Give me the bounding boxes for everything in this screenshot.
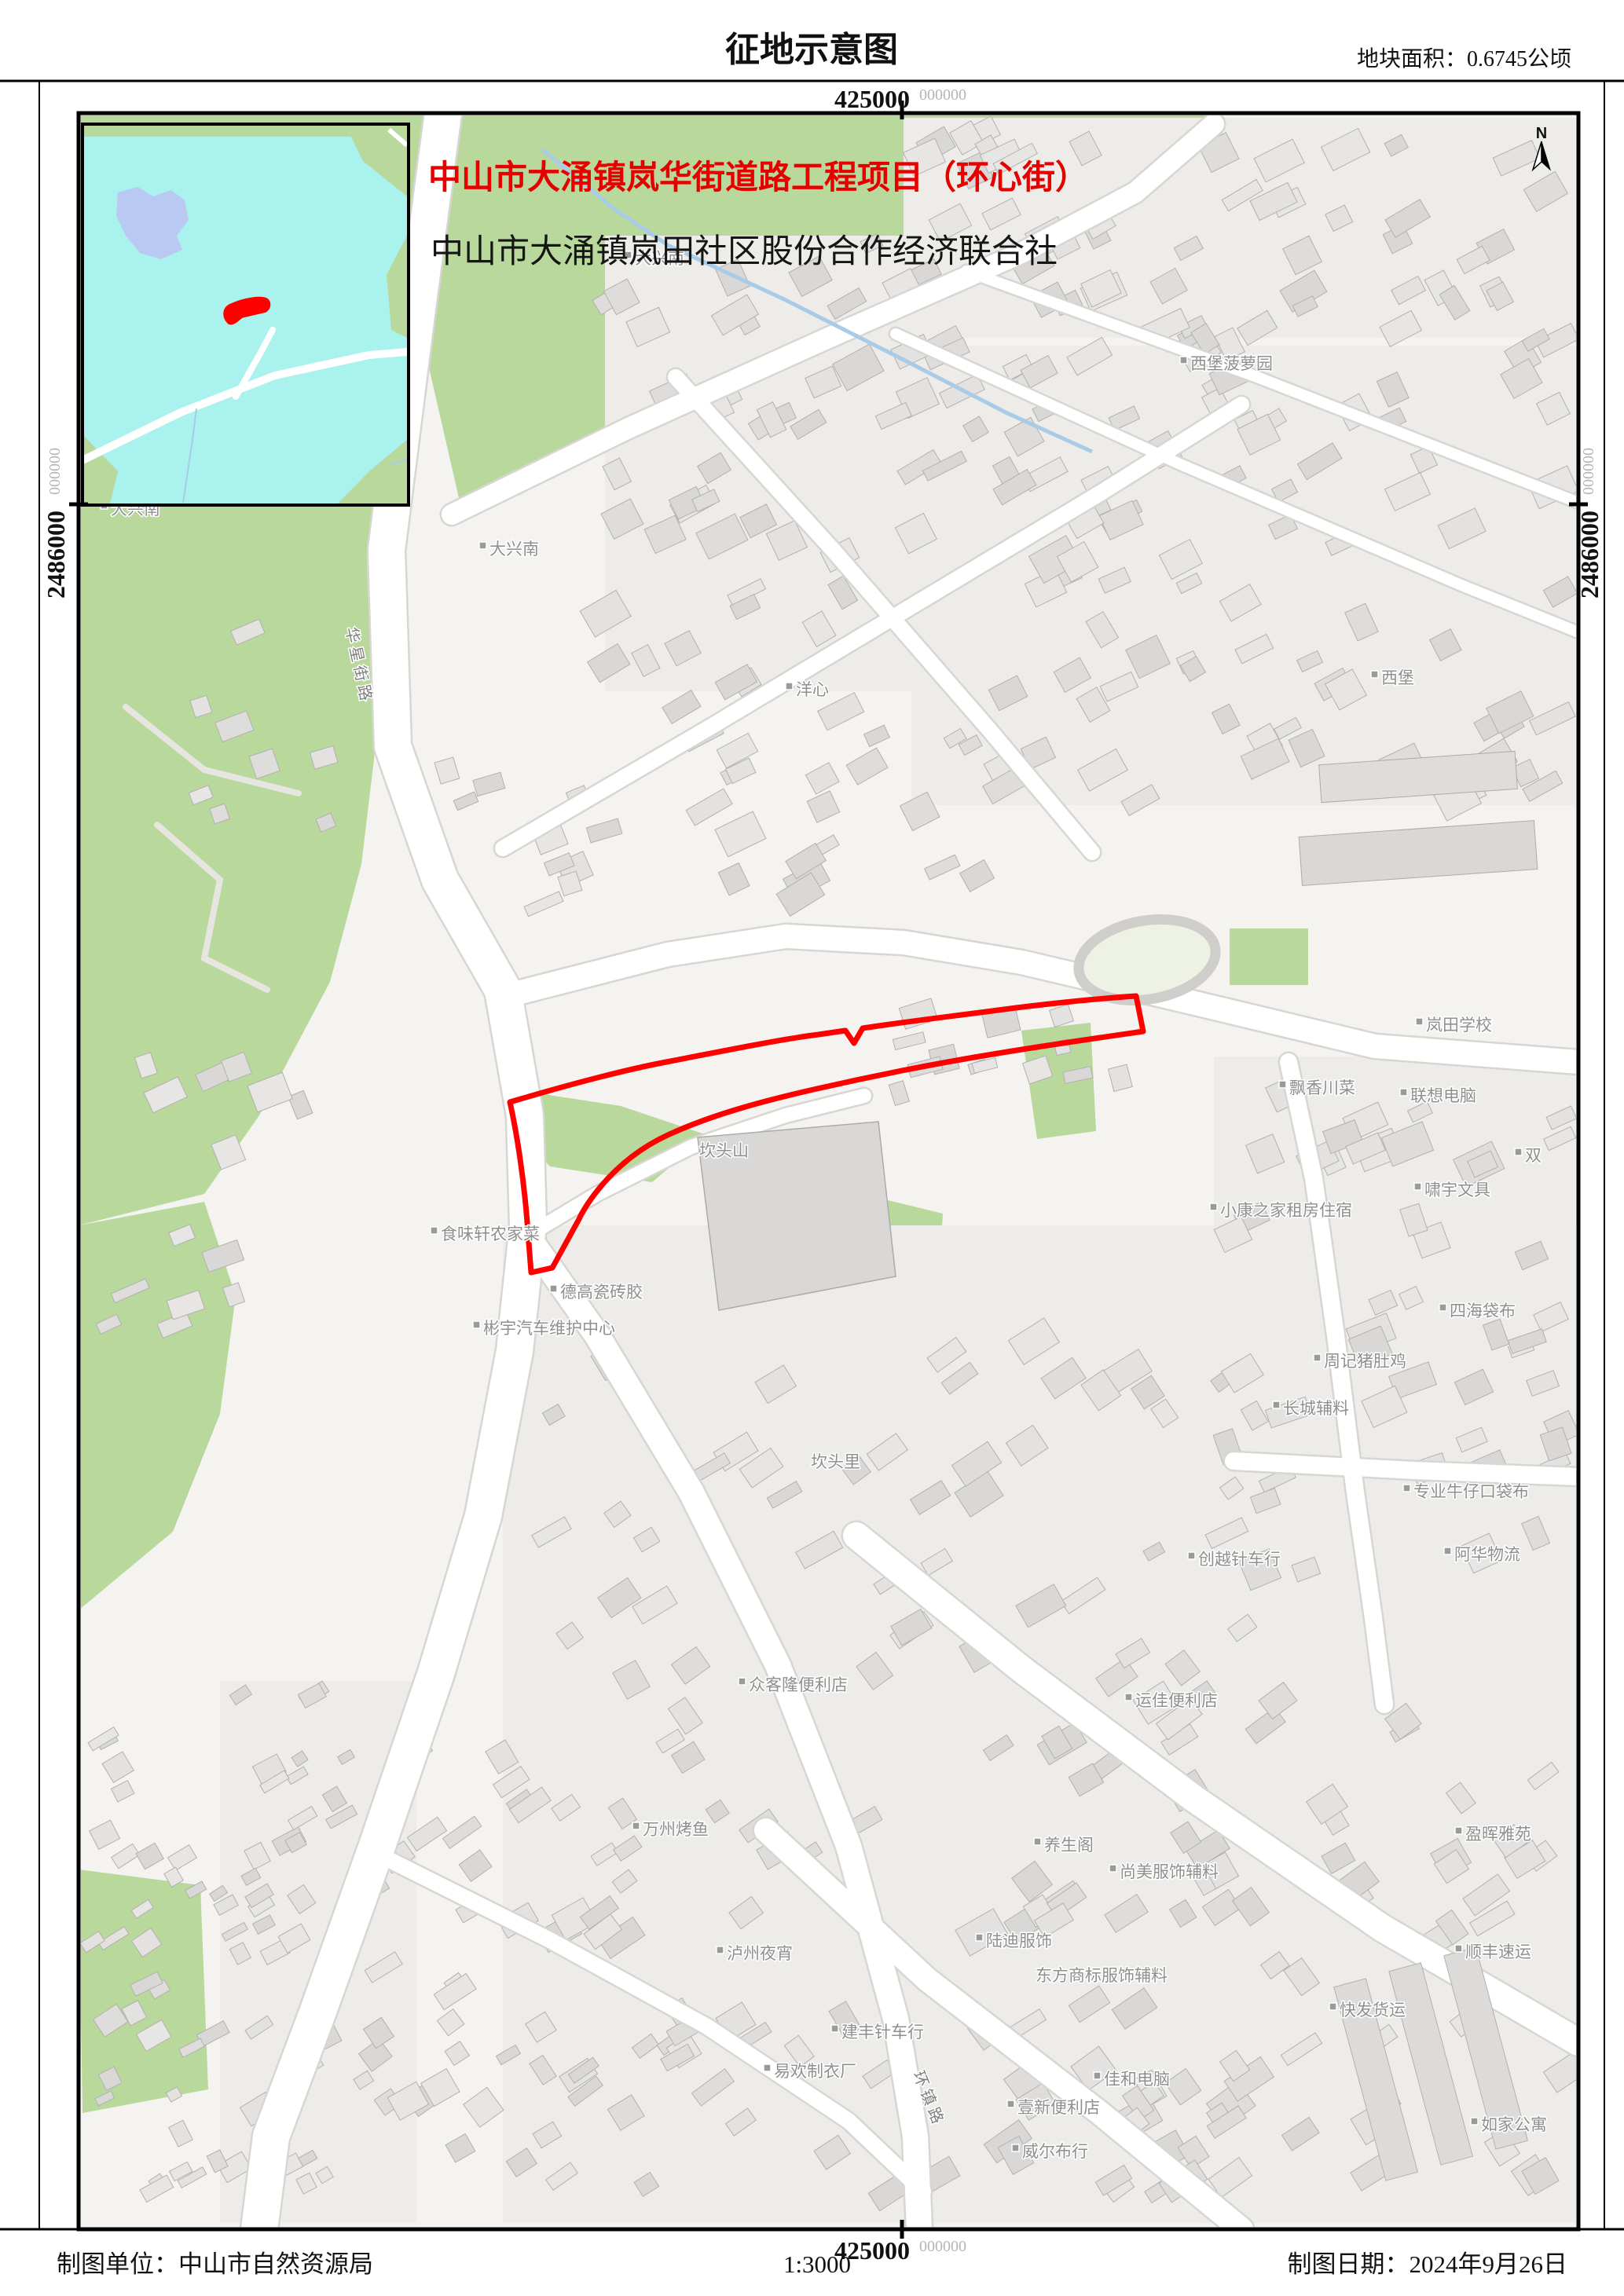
svg-text:佳和电脑: 佳和电脑 xyxy=(1104,2071,1170,2089)
map-label: 德高瓷砖胶 xyxy=(550,1283,643,1302)
svg-text:易欢制衣厂: 易欢制衣厂 xyxy=(774,2063,856,2081)
poi-marker-icon xyxy=(1515,1148,1522,1155)
svg-text:西堡菠萝园: 西堡菠萝园 xyxy=(1190,355,1273,373)
coord-left: 2486000 xyxy=(42,511,70,599)
svg-text:双: 双 xyxy=(1525,1147,1542,1165)
map-label: 快发货运 xyxy=(1329,2001,1406,2020)
poi-marker-icon xyxy=(717,1946,724,1954)
map-label: 飘香川菜 xyxy=(1279,1079,1355,1097)
poi-marker-icon xyxy=(739,1678,746,1685)
svg-text:盈晖雅苑: 盈晖雅苑 xyxy=(1465,1825,1531,1844)
poi-marker-icon xyxy=(1125,1694,1132,1701)
map-label: 佳和电脑 xyxy=(1094,2071,1170,2089)
svg-text:四海袋布: 四海袋布 xyxy=(1450,1302,1516,1320)
poi-marker-icon xyxy=(1416,1018,1423,1025)
map-label: 小康之家租房住宿 xyxy=(1210,1202,1352,1220)
map-label: 岚田学校 xyxy=(1416,1016,1492,1034)
poi-marker-icon xyxy=(550,1285,557,1292)
map-label: 盈晖雅苑 xyxy=(1455,1825,1531,1844)
poi-marker-icon xyxy=(1279,1081,1286,1088)
svg-text:大兴南: 大兴南 xyxy=(489,540,539,558)
poi-marker-icon xyxy=(1329,2003,1336,2010)
map-label: 食味轩农家菜 xyxy=(431,1225,540,1243)
svg-text:长城辅料: 长城辅料 xyxy=(1283,1400,1349,1418)
map-label: 四海袋布 xyxy=(1439,1302,1516,1320)
map-canvas: 征地示意图 地块面积：0.6745公顷 大兴南大兴南大兴南西堡菠萝园洋心西堡岚田… xyxy=(0,0,1624,2296)
poi-marker-icon xyxy=(1439,1304,1446,1311)
map-label: 坎头山 xyxy=(699,1142,749,1160)
svg-text:食味轩农家菜: 食味轩农家菜 xyxy=(441,1225,540,1243)
svg-text:运佳便利店: 运佳便利店 xyxy=(1135,1692,1218,1710)
map-label: 威尔布行 xyxy=(1012,2143,1088,2161)
coord-top: 425000 xyxy=(834,85,910,113)
svg-text:飘香川菜: 飘香川菜 xyxy=(1289,1079,1355,1097)
svg-text:东方商标服饰辅料: 东方商标服饰辅料 xyxy=(1036,1967,1168,1985)
poi-marker-icon xyxy=(976,1934,983,1941)
svg-text:周记猪肚鸡: 周记猪肚鸡 xyxy=(1324,1353,1406,1371)
map-label: 顺丰速运 xyxy=(1455,1943,1531,1961)
svg-text:洋心: 洋心 xyxy=(796,681,829,699)
svg-text:壹新便利店: 壹新便利店 xyxy=(1017,2099,1100,2117)
poi-marker-icon xyxy=(1012,2144,1019,2151)
inset-map xyxy=(82,124,409,505)
poi-marker-icon xyxy=(1400,1089,1407,1096)
poi-marker-icon xyxy=(1109,1865,1116,1872)
svg-text:专业牛仔口袋布: 专业牛仔口袋布 xyxy=(1413,1483,1529,1501)
poi-marker-icon xyxy=(1007,2100,1014,2107)
poi-marker-icon xyxy=(1180,357,1187,364)
svg-text:坎头山: 坎头山 xyxy=(699,1142,749,1160)
map-label: 众客隆便利店 xyxy=(739,1676,848,1694)
north-label: N xyxy=(1536,125,1547,142)
project-subtitle: 中山市大涌镇岚田社区股份合作经济联合社 xyxy=(431,233,1058,270)
svg-text:啸宇文具: 啸宇文具 xyxy=(1424,1181,1490,1199)
map-label: 创越针车行 xyxy=(1188,1551,1281,1569)
map-label: 易欢制衣厂 xyxy=(764,2063,856,2081)
coord-right-suffix: 000000 xyxy=(1580,448,1597,495)
map-label: 泸州夜宵 xyxy=(717,1945,793,1963)
map-label: 壹新便利店 xyxy=(1007,2099,1100,2117)
svg-text:联想电脑: 联想电脑 xyxy=(1410,1087,1476,1105)
map-label: 坎头里 xyxy=(811,1453,860,1471)
footer-scale: 1:3000 xyxy=(783,2250,851,2278)
poi-marker-icon xyxy=(1371,671,1378,678)
map-label: 联想电脑 xyxy=(1400,1087,1476,1105)
coord-top-suffix: 000000 xyxy=(919,86,966,104)
map-label: 陆迪服饰 xyxy=(976,1932,1052,1950)
map-label: 啸宇文具 xyxy=(1414,1181,1490,1199)
map-sheet: 征地示意图 地块面积：0.6745公顷 大兴南大兴南大兴南西堡菠萝园洋心西堡岚田… xyxy=(0,0,1624,2296)
map-label: 西堡菠萝园 xyxy=(1180,355,1273,373)
map-label: 如家公寓 xyxy=(1471,2116,1547,2134)
area-label: 地块面积：0.6745公顷 xyxy=(1357,46,1571,71)
svg-text:养生阁: 养生阁 xyxy=(1044,1836,1094,1855)
svg-text:尚美服饰辅料: 尚美服饰辅料 xyxy=(1120,1863,1219,1881)
coord-left-suffix: 000000 xyxy=(46,448,64,495)
svg-text:泸州夜宵: 泸州夜宵 xyxy=(727,1945,793,1963)
map-label: 运佳便利店 xyxy=(1125,1692,1218,1710)
svg-text:建丰针车行: 建丰针车行 xyxy=(841,2023,924,2041)
svg-text:西堡: 西堡 xyxy=(1381,669,1414,687)
svg-text:德高瓷砖胶: 德高瓷砖胶 xyxy=(560,1283,643,1302)
project-title: 中山市大涌镇岚华街道路工程项目（环心街） xyxy=(428,159,1088,196)
poi-marker-icon xyxy=(1471,2118,1478,2125)
poi-marker-icon xyxy=(1188,1552,1195,1559)
poi-marker-icon xyxy=(473,1321,480,1328)
svg-text:威尔布行: 威尔布行 xyxy=(1022,2143,1088,2161)
svg-text:如家公寓: 如家公寓 xyxy=(1481,2116,1547,2134)
svg-text:坎头里: 坎头里 xyxy=(811,1453,860,1471)
footer-date: 制图日期：2024年9月26日 xyxy=(1288,2250,1568,2278)
footer-agency: 制图单位：中山市自然资源局 xyxy=(57,2250,373,2278)
poi-marker-icon xyxy=(632,1822,640,1829)
svg-text:岚田学校: 岚田学校 xyxy=(1426,1016,1492,1034)
map-label: 周记猪肚鸡 xyxy=(1314,1353,1406,1371)
poi-marker-icon xyxy=(1210,1203,1217,1210)
svg-text:彬宇汽车维护中心: 彬宇汽车维护中心 xyxy=(483,1320,615,1338)
map-label: 万州烤鱼 xyxy=(632,1821,709,1839)
svg-text:快发货运: 快发货运 xyxy=(1340,2001,1406,2020)
map-label: 彬宇汽车维护中心 xyxy=(473,1320,615,1338)
poi-marker-icon xyxy=(1455,1827,1462,1834)
poi-marker-icon xyxy=(1455,1945,1462,1952)
poi-marker-icon xyxy=(1094,2072,1101,2079)
poi-marker-icon xyxy=(1403,1485,1410,1492)
map-label: 尚美服饰辅料 xyxy=(1109,1863,1219,1881)
map-label: 专业牛仔口袋布 xyxy=(1403,1483,1529,1501)
map-label: 阿华物流 xyxy=(1444,1546,1520,1564)
map-label: 建丰针车行 xyxy=(831,2023,924,2041)
svg-text:小康之家租房住宿: 小康之家租房住宿 xyxy=(1220,1202,1352,1220)
coord-right: 2486000 xyxy=(1575,511,1604,599)
poi-marker-icon xyxy=(764,2064,771,2071)
svg-text:顺丰速运: 顺丰速运 xyxy=(1465,1943,1531,1961)
svg-text:创越针车行: 创越针车行 xyxy=(1198,1551,1281,1569)
svg-text:阿华物流: 阿华物流 xyxy=(1454,1546,1520,1564)
poi-marker-icon xyxy=(786,683,793,690)
svg-text:陆迪服饰: 陆迪服饰 xyxy=(986,1932,1052,1950)
poi-marker-icon xyxy=(1314,1354,1321,1361)
map-label: 东方商标服饰辅料 xyxy=(1036,1967,1168,1985)
poi-marker-icon xyxy=(479,542,486,549)
poi-marker-icon xyxy=(1414,1183,1421,1190)
poi-marker-icon xyxy=(1034,1838,1041,1845)
poi-marker-icon xyxy=(1273,1401,1280,1408)
svg-text:众客隆便利店: 众客隆便利店 xyxy=(749,1676,848,1694)
map-label: 长城辅料 xyxy=(1273,1400,1349,1418)
coord-bottom-suffix: 000000 xyxy=(919,2238,966,2255)
svg-text:万州烤鱼: 万州烤鱼 xyxy=(643,1821,709,1839)
poi-marker-icon xyxy=(831,2025,838,2032)
poi-marker-icon xyxy=(1444,1547,1451,1554)
page-title: 征地示意图 xyxy=(725,31,898,69)
poi-marker-icon xyxy=(431,1227,438,1234)
